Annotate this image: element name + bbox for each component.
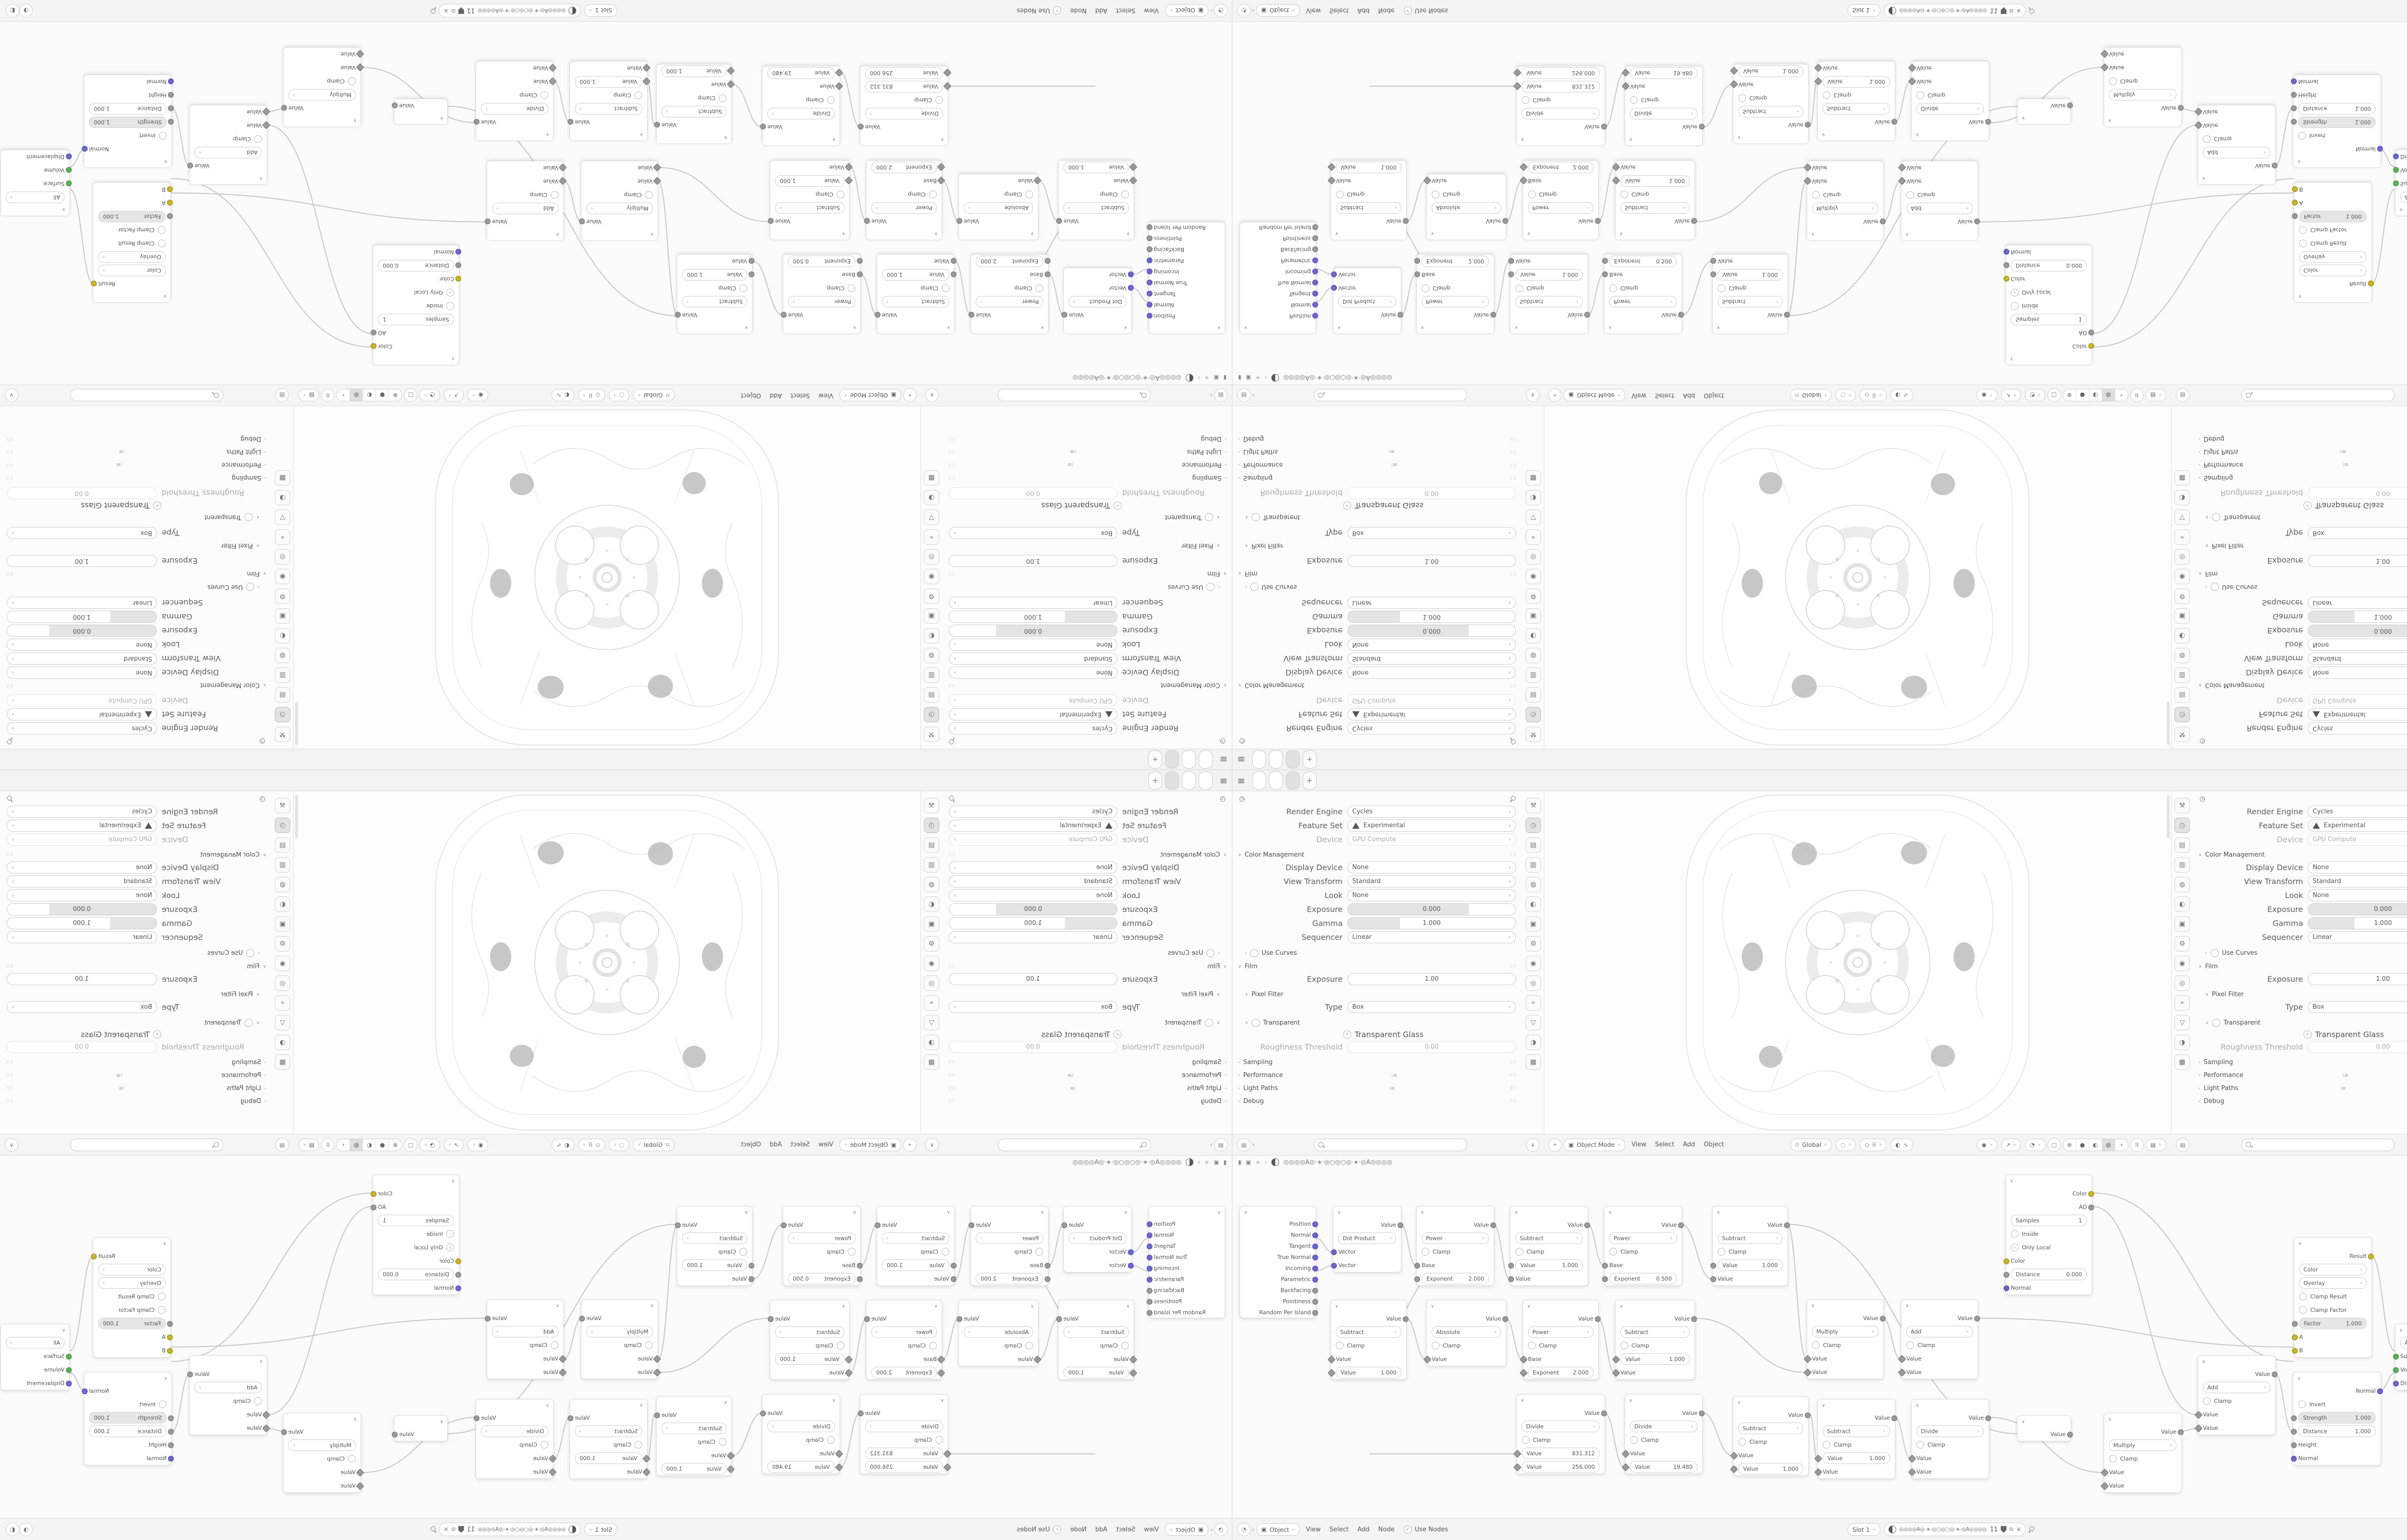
socket[interactable]	[82, 146, 88, 152]
transparent-checkbox[interactable]	[2212, 1019, 2220, 1027]
checkbox[interactable]	[1336, 191, 1344, 198]
section-sampling[interactable]: ›Sampling⠿⠿	[6, 474, 266, 481]
display-device-dropdown[interactable]: None∨	[2308, 861, 2407, 873]
checkbox[interactable]	[158, 240, 166, 247]
shading-material-button[interactable]: ◐	[2089, 390, 2102, 401]
shader-menu-add[interactable]: Add	[1358, 1526, 1370, 1533]
socket[interactable]	[2088, 1205, 2094, 1210]
checkbox[interactable]	[2203, 1397, 2211, 1405]
editor-type-icon[interactable]: ▤	[1214, 1138, 1228, 1152]
value-field[interactable]: Value1.000	[882, 269, 949, 281]
collapse-chevron-icon[interactable]: ∨	[1915, 1403, 1919, 1408]
node-math-subtract[interactable]: ∨ValueSubtract∨ClampValue1.000Value	[1510, 1206, 1588, 1286]
properties-tab-8[interactable]: ◉	[924, 956, 939, 971]
operation-dropdown[interactable]: All∨	[2400, 1337, 2407, 1348]
value-field[interactable]: Exponent2.000	[871, 162, 937, 173]
pin-icon[interactable]	[949, 796, 956, 802]
socket[interactable]	[1678, 1222, 1684, 1228]
gizmos-dropdown[interactable]: ↗∨	[2001, 1139, 2021, 1151]
look-dropdown[interactable]: None∨	[1347, 889, 1516, 901]
pivot-point-dropdown[interactable]: ◌∨	[1836, 1139, 1856, 1151]
socket[interactable]	[951, 1276, 957, 1282]
checkbox[interactable]	[2299, 1293, 2307, 1300]
socket[interactable]	[2393, 1381, 2399, 1386]
checkbox[interactable]	[929, 1342, 937, 1349]
use-curves-checkbox[interactable]	[1250, 583, 1258, 591]
value-field[interactable]: Distance0.000	[2011, 260, 2087, 271]
collapse-chevron-icon[interactable]: ∨	[1337, 1210, 1341, 1215]
editor-type-icon[interactable]: ▤	[1237, 1138, 1251, 1152]
collapse-chevron-icon[interactable]: ∨	[1629, 1398, 1632, 1403]
properties-tab-4[interactable]: ◍	[2174, 877, 2190, 892]
properties-tab-4[interactable]: ◍	[1526, 648, 1541, 663]
viewport-scrollbar[interactable]	[295, 795, 298, 838]
value-field[interactable]: Distance0.000	[2011, 1269, 2087, 1280]
collapse-chevron-icon[interactable]: ∨	[745, 325, 748, 331]
node-math-subtract[interactable]: ∨ValueSubtract∨ClampValue1.000Value	[1510, 254, 1588, 334]
operation-dropdown[interactable]: Divide∨	[481, 103, 548, 115]
use-nodes-toggle[interactable]: ✓ Use Nodes	[1017, 1526, 1061, 1534]
section-film[interactable]: ∨Film⠿⠿	[948, 963, 1227, 970]
checkbox[interactable]	[1630, 96, 1638, 104]
users-count-button[interactable]: 11	[1990, 7, 1998, 14]
new-material-button[interactable]: ⧉	[2009, 1526, 2013, 1533]
socket[interactable]	[392, 1432, 398, 1437]
node-mix-color[interactable]: ∨ResultColor∨Overlay∨Clamp ResultClamp F…	[2294, 1237, 2372, 1358]
operation-dropdown[interactable]: Divide∨	[1522, 108, 1600, 119]
roughness-threshold-field[interactable]: 0.00	[949, 487, 1117, 499]
properties-tab-9[interactable]: ◎	[924, 975, 939, 991]
device-dropdown[interactable]: GPU Compute∨	[2308, 694, 2407, 706]
gizmos-dropdown[interactable]: ↗∨	[444, 389, 464, 402]
operation-dropdown[interactable]: Add∨	[194, 147, 262, 158]
collapse-chevron-icon[interactable]: ∨	[842, 1304, 845, 1309]
section-debug[interactable]: ›Debug⠿⠿	[6, 1098, 266, 1105]
socket[interactable]	[1061, 1222, 1067, 1228]
value-field[interactable]: Distance1.000	[2298, 103, 2376, 115]
material-datablock-selector[interactable]: ◎◎◎◎A◎·∗·◎○◎○◎·∗·◎A◎◎◎◎ 11 ⧉ ×	[1884, 1523, 2026, 1536]
collapse-chevron-icon[interactable]: ∨	[1629, 137, 1632, 142]
socket[interactable]	[579, 1316, 585, 1322]
film-exposure-field[interactable]: 1.00	[949, 555, 1117, 567]
collapse-chevron-icon[interactable]: ∨	[1521, 137, 1524, 142]
collapse-chevron-icon[interactable]: ∨	[546, 1403, 549, 1408]
shader-menu-select[interactable]: Select	[1116, 7, 1135, 14]
pivot-point-dropdown[interactable]: ◌∨	[609, 1139, 629, 1151]
collapse-chevron-icon[interactable]: ∨	[1811, 232, 1814, 237]
socket[interactable]	[1147, 1221, 1152, 1227]
properties-tab-5[interactable]: ◐	[1526, 897, 1541, 912]
socket[interactable]	[858, 1411, 864, 1416]
node-geometry[interactable]: ∨PositionNormalTangentTrue NormalIncomin…	[1240, 222, 1316, 334]
pixel-filter-type-dropdown[interactable]: Box∨	[2308, 1001, 2407, 1013]
operation-dropdown[interactable]: Power∨	[871, 1326, 937, 1338]
socket[interactable]	[371, 1191, 376, 1197]
node-math-power[interactable]: ∨ValuePower∨ClampBaseExponent2.000	[1523, 160, 1599, 240]
socket[interactable]	[1331, 1249, 1337, 1255]
socket[interactable]	[1045, 1276, 1050, 1282]
socket[interactable]	[2292, 1348, 2298, 1354]
roughness-threshold-field[interactable]: 0.00	[1347, 1041, 1516, 1053]
properties-tab-2[interactable]: ▤	[275, 687, 290, 703]
value-field[interactable]: Value1.000	[661, 1463, 726, 1475]
unlink-button[interactable]: ×	[443, 1526, 449, 1533]
section-debug[interactable]: ›Debug⠿⠿	[1238, 435, 1517, 442]
shading-material-button[interactable]: ◐	[2089, 1139, 2102, 1151]
collapse-chevron-icon[interactable]: ∨	[1822, 132, 1825, 138]
properties-tab-5[interactable]: ◐	[924, 628, 939, 643]
socket[interactable]	[91, 1254, 97, 1259]
node-math-node[interactable]: ∨Value	[2017, 99, 2071, 125]
properties-tab-8[interactable]: ◉	[275, 956, 290, 971]
socket[interactable]	[1147, 247, 1152, 253]
socket[interactable]	[1331, 285, 1337, 291]
new-material-button[interactable]: ⧉	[452, 7, 455, 14]
socket[interactable]	[1414, 1263, 1420, 1269]
snap-node-button[interactable]: ◑	[19, 1523, 33, 1536]
node-ambient-occlusion[interactable]: ∨ColorAOSamples1Inside✓Only LocalColorDi…	[373, 1175, 459, 1295]
checkbox[interactable]	[1432, 1342, 1439, 1349]
socket[interactable]	[1147, 269, 1152, 275]
operation-dropdown[interactable]: Divide∨	[767, 1421, 835, 1432]
collapse-chevron-icon[interactable]: ∨	[832, 137, 836, 142]
operation-dropdown[interactable]: Multiply∨	[586, 1326, 653, 1337]
node-math-multiply[interactable]: ∨ValueMultiply∨ClampValueValue	[283, 47, 361, 127]
socket[interactable]	[1595, 218, 1601, 224]
properties-tab-12[interactable]: ◑	[2174, 490, 2190, 505]
checkbox[interactable]	[2299, 226, 2307, 234]
socket[interactable]	[1312, 1221, 1318, 1227]
properties-tab-1-render-active[interactable]: ◷	[1526, 818, 1541, 833]
operation-dropdown[interactable]: Divide∨	[865, 108, 943, 119]
display-device-dropdown[interactable]: None∨	[1347, 861, 1516, 873]
section-transparent[interactable]: ∨Transparent	[2205, 1019, 2407, 1027]
socket[interactable]	[781, 1222, 787, 1228]
view-transform-dropdown[interactable]: Standard∨	[2308, 653, 2407, 665]
socket[interactable]	[749, 1263, 754, 1269]
node-math-node[interactable]: ∨Value	[2017, 1415, 2071, 1441]
node-math-subtract[interactable]: ∨ValueSubtract∨ClampValue1.000Value	[770, 1300, 850, 1380]
socket[interactable]	[1045, 1263, 1050, 1269]
properties-tab-0[interactable]: ⚒	[275, 798, 290, 813]
gamma-slider[interactable]: 1.000	[1347, 917, 1516, 929]
editor-type-icon[interactable]: ◔	[1214, 1523, 1228, 1536]
film-exposure-field[interactable]: 1.00	[949, 973, 1117, 985]
collapse-chevron-icon[interactable]: ∨	[2399, 207, 2403, 213]
socket[interactable]	[1147, 1310, 1152, 1316]
operation-dropdown[interactable]: Subtract∨	[1620, 1326, 1690, 1338]
render-slot-dropdown[interactable]: ▤∨	[2146, 389, 2166, 402]
section-film[interactable]: ∨Film⠿⠿	[948, 570, 1227, 577]
properties-tab-2[interactable]: ▤	[1526, 687, 1541, 703]
transparent-checkbox[interactable]	[245, 1019, 253, 1027]
properties-tab-5[interactable]: ◐	[275, 897, 290, 912]
node-math-absolute[interactable]: ∨ValueAbsolute∨ClampValue	[958, 1300, 1038, 1366]
checkbox[interactable]	[1432, 191, 1439, 198]
filter-options-button[interactable]: ∨	[925, 389, 939, 402]
section-light-paths[interactable]: ›Light Paths⁝≡⠿⠿	[1238, 448, 1517, 455]
shader-menu-view[interactable]: View	[1306, 7, 1321, 14]
operation-dropdown[interactable]: Power∨	[976, 296, 1043, 308]
value-field[interactable]: Exponent0.500	[1609, 1273, 1677, 1284]
collapse-chevron-icon[interactable]: ∨	[1126, 231, 1130, 237]
node-math-divide[interactable]: ∨ValueDivide∨ClampValueValue	[476, 61, 554, 141]
editor-type-icon[interactable]: ◔	[1214, 4, 1228, 17]
node-math-subtract[interactable]: ∨ValueSubtract∨ClampValue1.000Value	[1615, 160, 1695, 240]
feature-set-dropdown[interactable]: Experimental∨	[2308, 708, 2407, 720]
node-math-power[interactable]: ∨ValuePower∨ClampBaseExponent2.000	[1523, 1300, 1599, 1380]
socket[interactable]	[969, 1222, 974, 1228]
node-math-divide[interactable]: ∨ValueDivide∨ClampValueValue	[1911, 61, 1989, 141]
properties-tab-2[interactable]: ▤	[2174, 687, 2190, 703]
socket[interactable]	[2292, 200, 2298, 205]
collapse-chevron-icon[interactable]: ∨	[556, 232, 559, 237]
use-curves-checkbox[interactable]	[2211, 583, 2219, 591]
socket[interactable]	[2291, 78, 2297, 84]
node-math-add[interactable]: ∨ValueAdd∨ClampValueValue	[487, 1299, 564, 1379]
properties-tab-13[interactable]: ▩	[924, 1054, 939, 1070]
collapse-chevron-icon[interactable]: ∨	[1217, 325, 1221, 331]
socket[interactable]	[167, 186, 173, 192]
properties-tab-3[interactable]: ▥	[1526, 667, 1541, 683]
viewport-menu-select[interactable]: Select	[790, 1141, 810, 1148]
socket[interactable]	[1312, 1255, 1318, 1260]
socket[interactable]	[2272, 1372, 2278, 1377]
section-transparent[interactable]: ∨Transparent	[948, 513, 1220, 521]
socket[interactable]	[1891, 119, 1897, 125]
properties-tab-8[interactable]: ◉	[2174, 956, 2190, 971]
value-field[interactable]: Samples1	[378, 1215, 454, 1226]
socket[interactable]	[1710, 271, 1716, 277]
socket[interactable]	[2004, 262, 2009, 268]
viewport-menu-object[interactable]: Object	[741, 1141, 761, 1148]
node-math-subtract[interactable]: ∨ValueSubtract∨ClampValue1.000Value	[770, 160, 850, 240]
properties-tab-7[interactable]: ⚙	[275, 589, 290, 604]
node-math-multiply[interactable]: ∨ValueMultiply∨ClampValueValue	[581, 161, 658, 241]
value-field[interactable]: Distance1.000	[89, 1425, 167, 1437]
checkbox[interactable]	[254, 135, 262, 143]
pause-render-button[interactable]: II	[2130, 1138, 2144, 1152]
checkbox[interactable]	[1025, 1342, 1033, 1349]
checkbox[interactable]	[158, 226, 166, 234]
socket[interactable]	[875, 1222, 880, 1228]
collapse-chevron-icon[interactable]: ∨	[1431, 231, 1434, 237]
collapse-chevron-icon[interactable]: ∨	[164, 1376, 168, 1381]
node-material-output[interactable]: ∨All∨SurfaceVolumeDisplacement	[0, 1324, 70, 1390]
shading-rendered-button[interactable]: ◍	[349, 1139, 362, 1151]
operation-dropdown[interactable]: Power∨	[976, 1232, 1043, 1244]
properties-tab-0[interactable]: ⚒	[924, 727, 939, 742]
checkbox[interactable]	[634, 1441, 642, 1449]
properties-tab-11[interactable]: ▽	[924, 1015, 939, 1030]
sequencer-dropdown[interactable]: Linear∨	[949, 597, 1117, 609]
properties-tab-12[interactable]: ◑	[924, 490, 939, 505]
properties-tab-6[interactable]: ▣	[1526, 916, 1541, 932]
transparent-glass-checkbox[interactable]: ✓	[2303, 1030, 2312, 1039]
value-field[interactable]: Distance0.000	[378, 1269, 454, 1280]
value-field[interactable]: Value19.480	[767, 1461, 835, 1473]
properties-search-input[interactable]	[70, 389, 223, 402]
checkbox[interactable]	[1035, 284, 1043, 292]
device-dropdown[interactable]: GPU Compute∨	[1347, 694, 1516, 706]
value-field[interactable]: Value1.000	[1620, 1353, 1690, 1365]
socket[interactable]	[1147, 280, 1152, 286]
transparent-glass-checkbox[interactable]: ✓	[153, 1030, 161, 1039]
add-workspace-button[interactable]: +	[1303, 751, 1317, 769]
section-film[interactable]: ∨Film⠿⠿	[2199, 570, 2407, 577]
transform-orientation-dropdown[interactable]: ⌭Global∨	[1790, 1139, 1832, 1151]
use-nodes-toggle[interactable]: ✓ Use Nodes	[1017, 7, 1061, 15]
look-dropdown[interactable]: None∨	[2308, 889, 2407, 901]
section-debug[interactable]: ›Debug⠿⠿	[948, 435, 1227, 442]
collapse-chevron-icon[interactable]: ∨	[1431, 1304, 1434, 1309]
socket[interactable]	[2067, 103, 2073, 108]
checkbox[interactable]	[1422, 1248, 1429, 1256]
socket[interactable]	[749, 271, 754, 277]
operation-dropdown[interactable]: Absolute∨	[1432, 1326, 1501, 1338]
checkbox[interactable]	[2109, 77, 2117, 85]
operation-dropdown[interactable]: Overlay∨	[98, 251, 166, 263]
properties-tab-4[interactable]: ◍	[924, 877, 939, 892]
checkbox[interactable]	[254, 1397, 262, 1405]
section-transparent[interactable]: ∨Transparent	[948, 1019, 1220, 1027]
collapse-chevron-icon[interactable]: ∨	[1031, 1304, 1034, 1309]
node-math-subtract[interactable]: ∨ValueSubtract∨ClampValue1.000Value	[677, 1206, 752, 1286]
node-math-multiply[interactable]: ∨ValueMultiply∨ClampValueValue	[2104, 1413, 2182, 1493]
properties-tab-8[interactable]: ◉	[2174, 569, 2190, 584]
section-color-management[interactable]: ∨Color Management⠿⠿	[2199, 851, 2407, 859]
render-slot-dropdown[interactable]: ▤∨	[298, 389, 319, 402]
socket[interactable]	[1312, 1299, 1318, 1305]
collapse-chevron-icon[interactable]: ∨	[1031, 231, 1034, 237]
socket[interactable]	[91, 281, 97, 286]
socket[interactable]	[2393, 1367, 2399, 1373]
checkbox[interactable]	[348, 77, 356, 85]
add-workspace-button[interactable]: +	[1148, 751, 1162, 769]
socket[interactable]	[82, 1388, 88, 1394]
socket[interactable]	[2291, 1456, 2297, 1462]
checkbox[interactable]	[2299, 240, 2307, 247]
snap-dropdown[interactable]: ◇⠿∨	[1860, 389, 1887, 402]
workspace-tab-active[interactable]	[1165, 771, 1179, 790]
viewport-scrollbar[interactable]	[2167, 795, 2170, 838]
collapse-chevron-icon[interactable]: ∨	[2021, 1419, 2025, 1424]
use-nodes-toggle[interactable]: ✓ Use Nodes	[1404, 1526, 1448, 1534]
node-math-subtract[interactable]: ∨ValueSubtract∨ClampValueValue1.000	[1733, 1396, 1809, 1476]
operation-dropdown[interactable]: Add∨	[1906, 203, 1973, 214]
section-performance[interactable]: ›Performance⁝≡⠿⠿	[1238, 1072, 1517, 1079]
shader-node-editor[interactable]: ▮ ▣ + › ◎◎◎◎A◎·∗·◎○◎○◎·∗·◎A◎◎◎◎ ∨Positio…	[1232, 1155, 2407, 1519]
sequencer-dropdown[interactable]: Linear∨	[2308, 597, 2407, 609]
socket[interactable]	[2368, 1254, 2374, 1259]
value-field[interactable]: Value1.000	[1620, 175, 1690, 187]
node-math-subtract[interactable]: ∨ValueSubtract∨ClampValue1.000Value	[677, 254, 752, 334]
checkbox[interactable]	[719, 94, 726, 102]
checkbox[interactable]	[1121, 1342, 1129, 1349]
node-math-node[interactable]: ∨Value	[394, 1415, 448, 1441]
value-field[interactable]: Exponent0.500	[788, 1273, 855, 1284]
value-field[interactable]: Value831.312	[865, 1448, 943, 1459]
collapse-chevron-icon[interactable]: ∨	[1514, 325, 1518, 331]
socket[interactable]	[1699, 124, 1705, 129]
checkbox[interactable]	[446, 302, 454, 310]
section-sampling[interactable]: ›Sampling⠿⠿	[2199, 474, 2407, 481]
value-field[interactable]: Distance1.000	[89, 103, 167, 115]
socket[interactable]	[2088, 330, 2094, 335]
shading-wireframe-button[interactable]: ⊕	[2063, 1139, 2076, 1151]
section-performance[interactable]: ›Performance⁝≡⠿⠿	[948, 461, 1227, 468]
pin-icon[interactable]	[949, 738, 956, 744]
operation-dropdown[interactable]: Multiply∨	[2109, 1439, 2176, 1451]
checkbox[interactable]	[1515, 1248, 1523, 1256]
value-field[interactable]: Value256.000	[1522, 1461, 1600, 1473]
value-field[interactable]: Exponent2.000	[976, 1273, 1043, 1284]
collapse-chevron-icon[interactable]: ∨	[353, 118, 357, 124]
operation-dropdown[interactable]: Subtract∨	[882, 1232, 949, 1244]
value-field[interactable]: Value1.000	[775, 175, 844, 187]
use-curves-checkbox[interactable]	[1250, 949, 1258, 957]
workspace-tab[interactable]	[1269, 751, 1283, 769]
value-field[interactable]: Value256.000	[865, 67, 943, 79]
display-device-dropdown[interactable]: None∨	[2308, 667, 2407, 679]
shader-menu-select[interactable]: Select	[1116, 1526, 1135, 1533]
socket[interactable]	[2291, 1442, 2297, 1448]
collapse-chevron-icon[interactable]: ∨	[2297, 1376, 2301, 1381]
editor-type-icon[interactable]: ⌖	[903, 1138, 917, 1152]
checkbox[interactable]	[848, 1248, 855, 1256]
node-vector-math[interactable]: ∨ValueDot Product∨VectorVector	[1063, 268, 1132, 334]
overlays-dropdown[interactable]: ◔∨	[419, 1139, 440, 1151]
pin-icon[interactable]	[2028, 7, 2034, 14]
value-field[interactable]: Value1.000	[1063, 1367, 1129, 1378]
look-dropdown[interactable]: None∨	[1347, 639, 1516, 651]
properties-search-input[interactable]	[70, 1139, 223, 1151]
properties-tab-3[interactable]: ▥	[2174, 857, 2190, 873]
section-debug[interactable]: ›Debug⠿⠿	[2199, 435, 2407, 442]
socket[interactable]	[1784, 1222, 1790, 1228]
socket[interactable]	[1508, 1263, 1514, 1269]
editor-type-icon[interactable]: ▤	[275, 1138, 289, 1152]
app-menu-icon[interactable]: ≡	[1219, 754, 1228, 766]
collapse-chevron-icon[interactable]: ∨	[1521, 1398, 1524, 1403]
unlink-button[interactable]: ×	[2016, 1526, 2021, 1533]
section-light-paths[interactable]: ›Light Paths⁝≡⠿⠿	[2199, 1085, 2407, 1092]
collapse-chevron-icon[interactable]: ∨	[1915, 132, 1919, 138]
collapse-chevron-icon[interactable]: ∨	[1244, 1210, 1247, 1215]
checkbox[interactable]	[1906, 1341, 1914, 1349]
shader-menu-node[interactable]: Node	[1378, 1526, 1395, 1533]
section-light-paths[interactable]: ›Light Paths⁝≡⠿⠿	[948, 448, 1227, 455]
shading-solid-button[interactable]: ●	[375, 390, 388, 401]
value-field[interactable]: Value256.000	[1522, 67, 1600, 79]
pin-icon[interactable]	[7, 738, 13, 744]
socket[interactable]	[2004, 1285, 2009, 1291]
socket[interactable]	[66, 1381, 72, 1386]
editor-type-icon[interactable]: ▤	[2176, 1138, 2189, 1152]
node-ambient-occlusion[interactable]: ∨ColorAOSamples1Inside✓Only LocalColorDi…	[2006, 245, 2092, 365]
node-bump[interactable]: ∨NormalInvertStrength1.000Distance1.000H…	[84, 1372, 172, 1465]
properties-tab-1-render-active[interactable]: ◷	[1526, 707, 1541, 722]
properties-tab-7[interactable]: ⚙	[2174, 936, 2190, 951]
operation-dropdown[interactable]: Subtract∨	[661, 1423, 726, 1434]
socket[interactable]	[2004, 1272, 2009, 1278]
socket[interactable]	[2291, 1415, 2297, 1421]
node-math-add[interactable]: ∨ValueAdd∨ClampValueValue	[189, 105, 267, 185]
node-math-multiply[interactable]: ∨ValueMultiply∨ClampValueValue	[1807, 161, 1884, 241]
properties-tab-10[interactable]: ⌖	[1526, 529, 1541, 545]
node-math-divide[interactable]: ∨ValueDivide∨ClampValueValue19.480	[762, 1394, 840, 1474]
render-engine-dropdown[interactable]: Cycles∨	[7, 806, 157, 818]
